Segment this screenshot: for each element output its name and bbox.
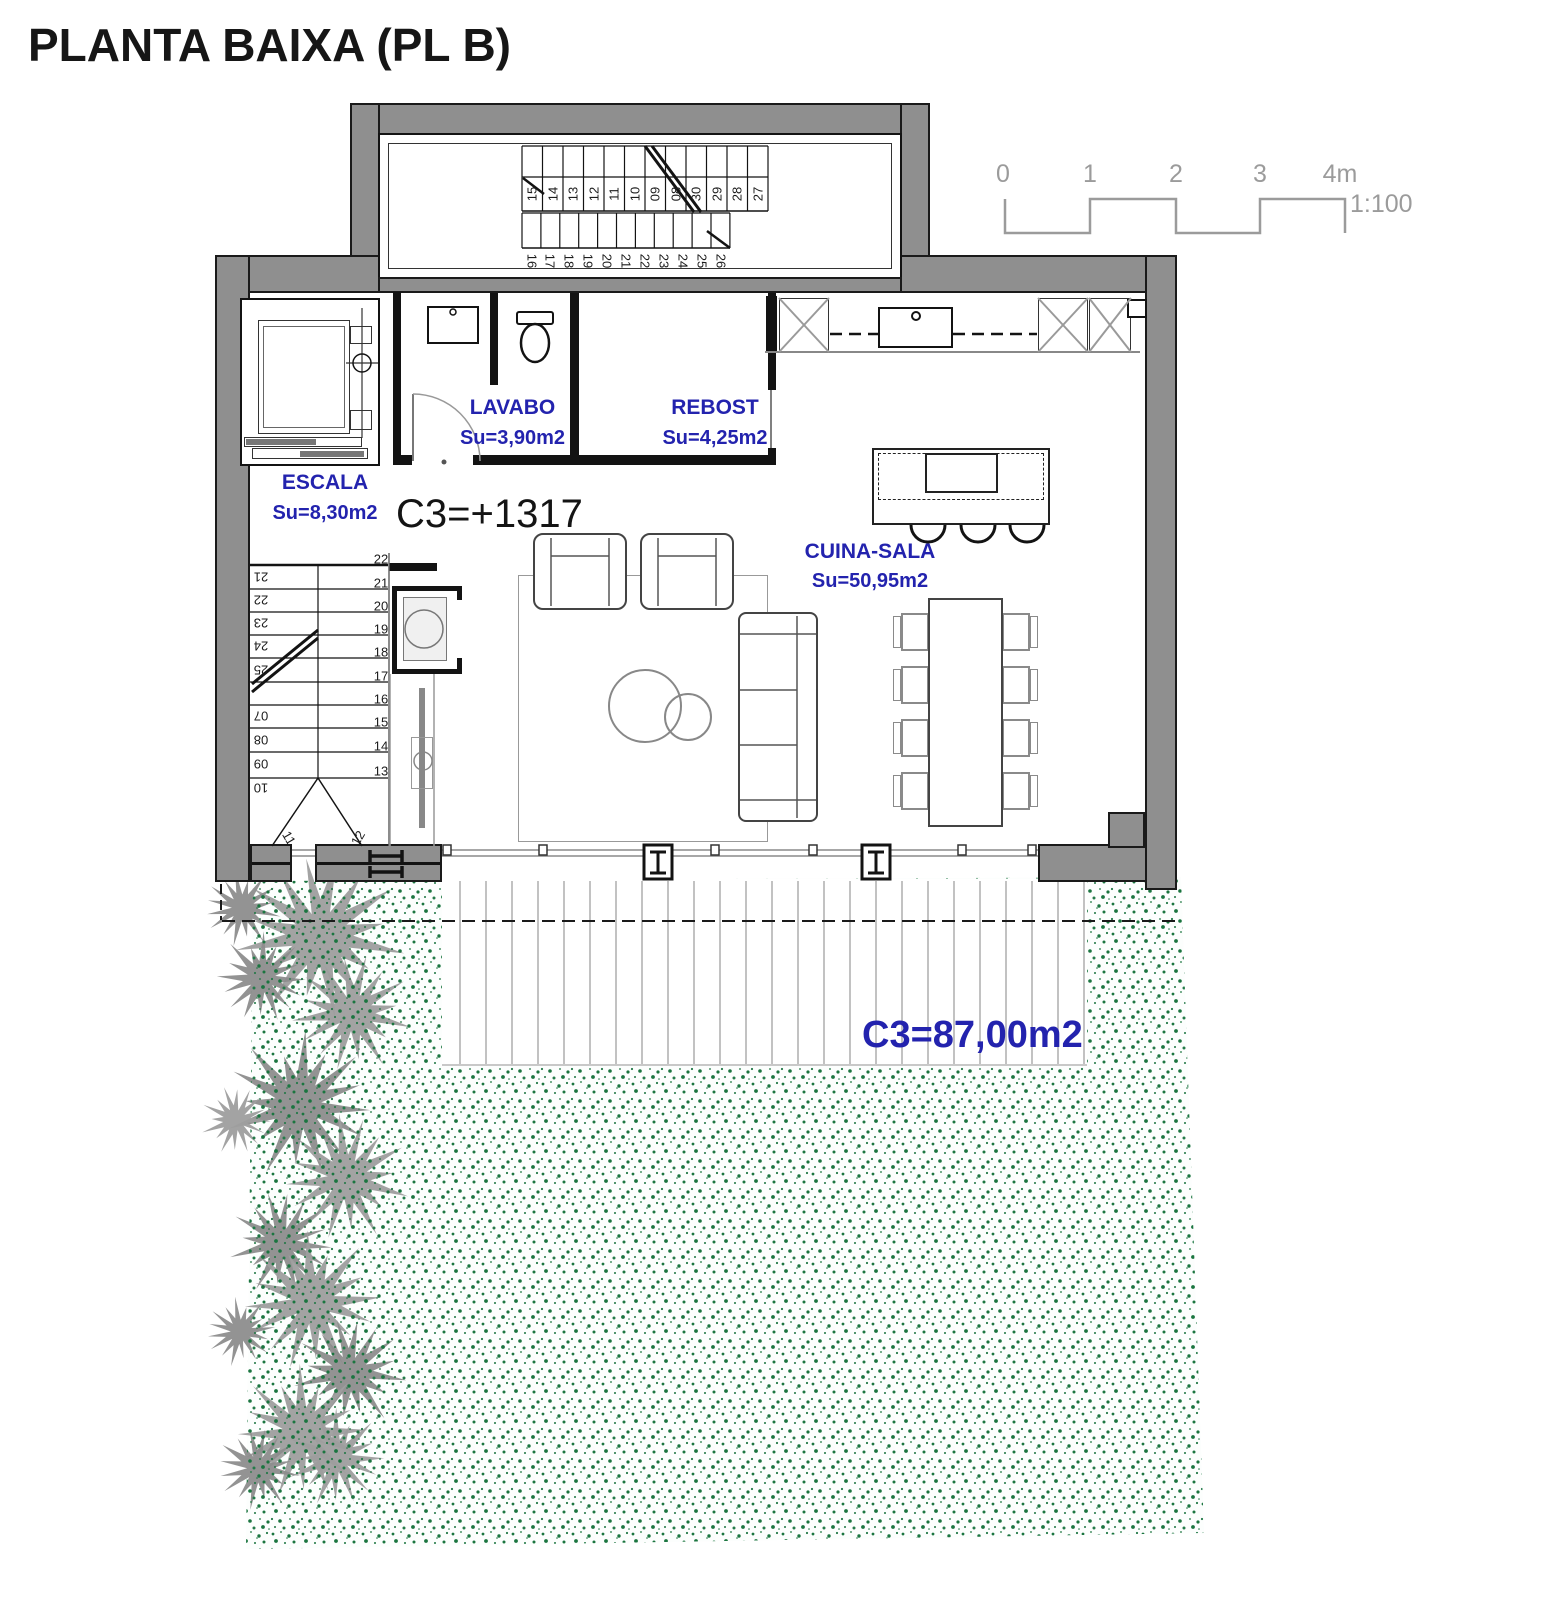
dining-chair bbox=[1030, 722, 1038, 754]
room-area-lavabo: Su=3,90m2 bbox=[440, 427, 585, 450]
stair-first-tread-bar bbox=[389, 563, 437, 571]
stair-number: 19 bbox=[581, 254, 596, 268]
kitchen-sink bbox=[878, 307, 953, 348]
stair-number: 10 bbox=[627, 187, 642, 201]
wall-joint-line bbox=[252, 862, 290, 865]
wall-right bbox=[1145, 255, 1177, 890]
dining-chair bbox=[901, 613, 929, 651]
stair-number: 16 bbox=[374, 692, 388, 707]
stair-number: 29 bbox=[709, 187, 724, 201]
stair-number: 22 bbox=[254, 593, 268, 608]
stair-number: 23 bbox=[254, 616, 268, 631]
terrace-area-annotation: C3=87,00m2 bbox=[862, 1014, 1083, 1057]
stair-number: 20 bbox=[600, 254, 615, 268]
elevator-door-dark-1 bbox=[246, 439, 316, 445]
stair-number: 09 bbox=[648, 187, 663, 201]
stair-number: 27 bbox=[750, 187, 765, 201]
dining-chair bbox=[1002, 772, 1030, 810]
island-cooktop bbox=[925, 453, 998, 493]
stair-number: 08 bbox=[668, 187, 683, 201]
wall-bottom-right-corner bbox=[1038, 844, 1147, 882]
armchair-2 bbox=[640, 533, 734, 610]
room-label-rebost: REBOST bbox=[640, 396, 790, 420]
dining-chair bbox=[901, 666, 929, 704]
wall-joint-line bbox=[317, 862, 440, 865]
stair-number: 18 bbox=[562, 254, 577, 268]
armchair-1 bbox=[533, 533, 627, 610]
page-title: PLANTA BAIXA (PL B) bbox=[28, 18, 511, 72]
fireplace-opening bbox=[457, 600, 467, 658]
floor-plan-page: PLANTA BAIXA (PL B) 01234m 1:100 bbox=[0, 0, 1556, 1600]
stair-number: 13 bbox=[374, 764, 388, 779]
counter-left-cap bbox=[766, 296, 777, 352]
dining-chair bbox=[1002, 719, 1030, 757]
dining-chair bbox=[893, 616, 901, 648]
wall-under-stairs bbox=[378, 277, 902, 293]
stair-number: 25 bbox=[254, 663, 268, 678]
wall-rebost-bottom bbox=[578, 455, 775, 465]
stair-number: 13 bbox=[566, 187, 581, 201]
stair-number: 09 bbox=[254, 757, 268, 772]
stair-number: 18 bbox=[374, 645, 388, 660]
dining-chair bbox=[1030, 616, 1038, 648]
room-label-cuina-sala: CUINA-SALA bbox=[790, 540, 950, 564]
stair-number: 15 bbox=[374, 715, 388, 730]
stair-number: 17 bbox=[543, 254, 558, 268]
room-label-escala: ESCALA bbox=[255, 471, 395, 495]
sink bbox=[427, 306, 479, 344]
wall-bottom-block-a bbox=[250, 844, 292, 882]
stair-number: 23 bbox=[656, 254, 671, 268]
stair-number: 08 bbox=[254, 733, 268, 748]
stair-number: 16 bbox=[524, 254, 539, 268]
dining-chair bbox=[1002, 666, 1030, 704]
wall-toilet-partition bbox=[490, 293, 498, 385]
tall-unit-right-2 bbox=[1089, 298, 1131, 352]
room-area-rebost: Su=4,25m2 bbox=[640, 427, 790, 450]
stair-number: 28 bbox=[730, 187, 745, 201]
sofa bbox=[738, 612, 818, 822]
stair-number: 12 bbox=[586, 187, 601, 201]
stair-number: 22 bbox=[637, 254, 652, 268]
dining-chair bbox=[893, 722, 901, 754]
dining-chair bbox=[901, 772, 929, 810]
tall-unit-right-1 bbox=[1038, 298, 1088, 352]
dining-chair bbox=[893, 775, 901, 807]
room-area-cuina-sala: Su=50,95m2 bbox=[790, 570, 950, 593]
dining-chair bbox=[1002, 613, 1030, 651]
elevator-rail-top bbox=[350, 326, 372, 344]
stair-number: 11 bbox=[607, 187, 622, 201]
elevator-cab-inner bbox=[263, 326, 345, 428]
tv-bracket bbox=[411, 737, 433, 789]
wall-stair-housing-top bbox=[350, 103, 930, 135]
room-area-escala: Su=8,30m2 bbox=[255, 502, 395, 525]
stair-number: 24 bbox=[254, 639, 268, 654]
stair-number: 14 bbox=[545, 187, 560, 201]
stair-number: 21 bbox=[254, 570, 268, 585]
stair-number: 26 bbox=[713, 254, 728, 268]
elevator-door-dark-2 bbox=[300, 451, 364, 457]
dining-chair bbox=[1030, 669, 1038, 701]
stair-number: 21 bbox=[374, 576, 388, 591]
stair-number: 17 bbox=[374, 669, 388, 684]
stair-number: 22 bbox=[374, 552, 388, 567]
stair-number: 14 bbox=[374, 739, 388, 754]
stair-number: 25 bbox=[694, 254, 709, 268]
wall-lavabo-bottom bbox=[473, 455, 577, 465]
wall-top-right bbox=[900, 255, 1177, 293]
wall-right-step bbox=[1108, 812, 1145, 848]
room-label-lavabo: LAVABO bbox=[440, 396, 585, 420]
dining-chair bbox=[901, 719, 929, 757]
stair-number: 20 bbox=[374, 599, 388, 614]
stair-number: 07 bbox=[254, 709, 268, 724]
stair-number: 10 bbox=[254, 781, 268, 796]
stair-number: 15 bbox=[525, 187, 540, 201]
tall-unit-left bbox=[779, 298, 829, 352]
fireplace-inner bbox=[403, 597, 447, 661]
stair-number: 19 bbox=[374, 622, 388, 637]
stair-number: 30 bbox=[689, 187, 704, 201]
stair-number: 21 bbox=[619, 254, 634, 268]
stair-housing-inner-border bbox=[388, 143, 892, 269]
wall-lavabo-bottom-stub bbox=[395, 455, 412, 465]
corner-duct bbox=[1127, 299, 1147, 318]
dining-table bbox=[928, 598, 1003, 827]
wall-bottom-block-b bbox=[315, 844, 442, 882]
rug bbox=[518, 575, 768, 842]
level-annotation: C3=+1317 bbox=[396, 492, 583, 537]
dining-chair bbox=[893, 669, 901, 701]
wall-hall-lavabo bbox=[393, 292, 401, 465]
dining-chair bbox=[1030, 775, 1038, 807]
elevator-rail-bottom bbox=[350, 410, 372, 430]
stair-number: 24 bbox=[675, 254, 690, 268]
